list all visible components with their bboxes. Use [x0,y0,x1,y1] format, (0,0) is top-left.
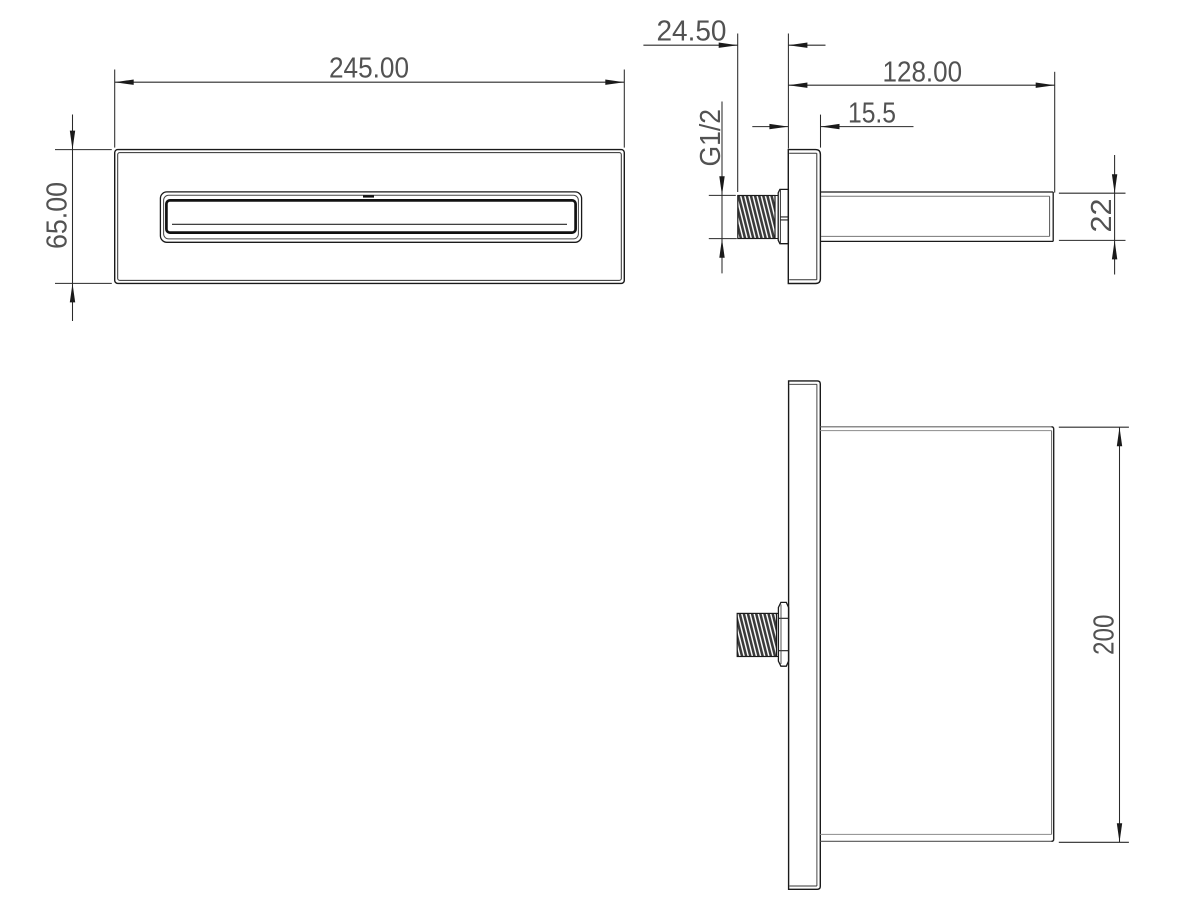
svg-text:65.00: 65.00 [42,182,74,249]
svg-text:22: 22 [1086,199,1118,233]
svg-text:200: 200 [1089,614,1121,655]
svg-text:24.50: 24.50 [657,15,727,47]
svg-text:128.00: 128.00 [883,57,963,89]
svg-text:G1/2: G1/2 [695,109,727,167]
svg-text:15.5: 15.5 [848,98,896,130]
svg-text:245.00: 245.00 [329,53,409,85]
